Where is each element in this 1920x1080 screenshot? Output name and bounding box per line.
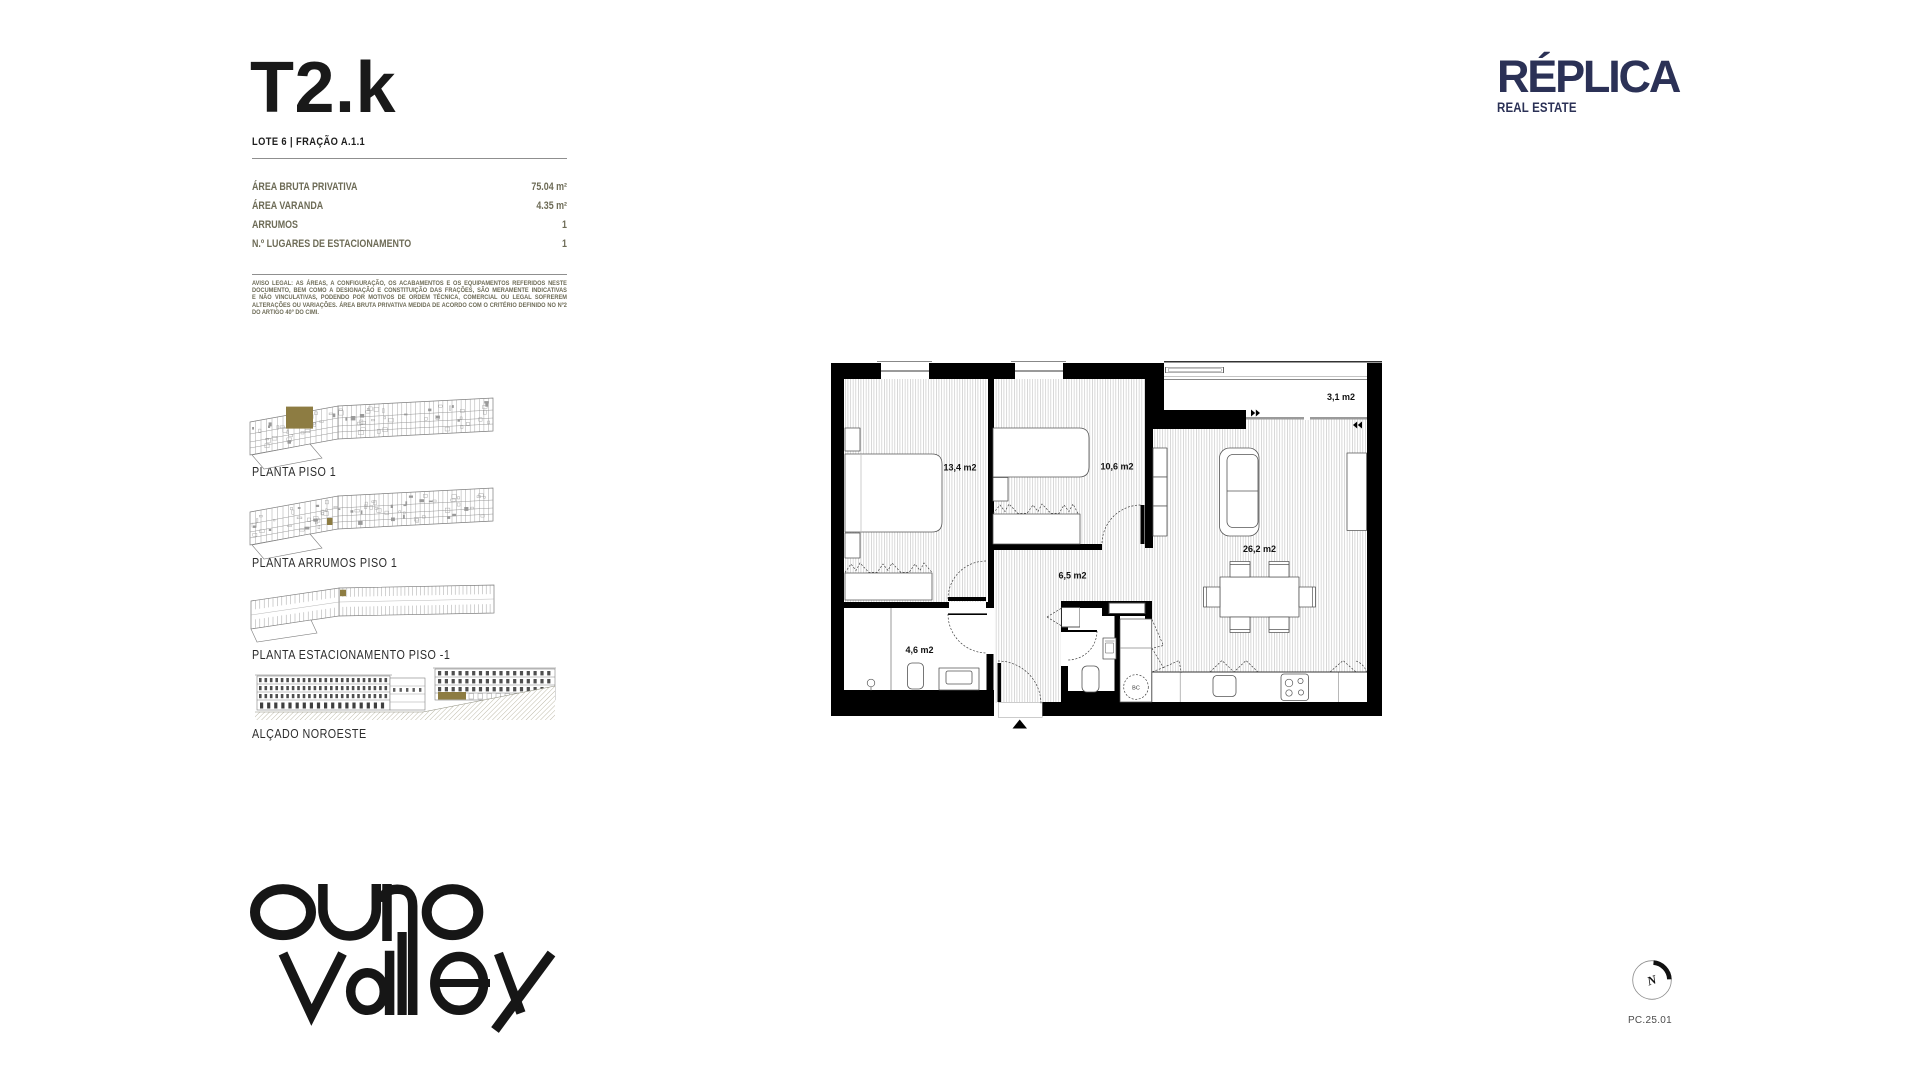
svg-text:10,6 m2: 10,6 m2 [1100,462,1133,472]
svg-text:26,2 m2: 26,2 m2 [1243,544,1276,554]
svg-text:BC: BC [1132,686,1140,692]
svg-text:3,1 m2: 3,1 m2 [1327,392,1355,402]
svg-text:4,6 m2: 4,6 m2 [905,645,933,655]
svg-text:13,4 m2: 13,4 m2 [943,463,976,473]
svg-text:N: N [1644,972,1659,989]
svg-text:6,5 m2: 6,5 m2 [1058,571,1086,581]
